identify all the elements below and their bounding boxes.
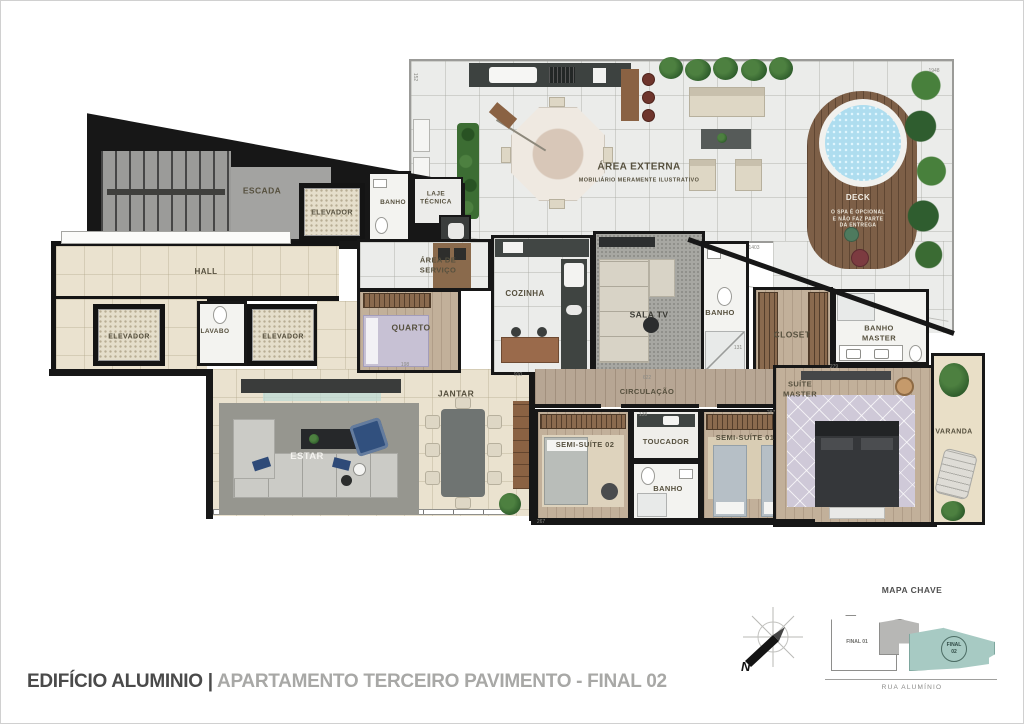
room-label-circulacao: CIRCULAÇÃO (620, 387, 674, 397)
room-label-area-servico: ÁREA DESERVIÇO (420, 255, 456, 275)
room-label-hall: HALL (195, 267, 218, 277)
toilet-icon (641, 467, 655, 485)
hall-bench (61, 231, 291, 244)
dining-chair (487, 415, 502, 429)
circulation-wall (535, 404, 601, 408)
floor-plant (499, 493, 521, 515)
dining-chair (455, 497, 471, 509)
dimension-label: 287 (767, 410, 775, 416)
key-map-final02-badge: FINAL 02 (941, 636, 967, 662)
room-label-area-externa-note: MOBILIÁRIO MERAMENTE ILUSTRATIVO (579, 177, 700, 184)
bed-bench (829, 507, 885, 519)
dining-chair (487, 443, 502, 457)
kitchen-stool (537, 327, 547, 337)
street-label: RUA ALUMÍNIO (882, 684, 943, 691)
grill-icon (549, 67, 575, 83)
north-label: N (741, 659, 750, 674)
key-map-final01-label: FINAL 01 (845, 639, 869, 646)
lounge-chair (413, 119, 430, 152)
sink-icon (373, 179, 387, 188)
basket (895, 377, 914, 396)
room-label-toucador: TOUCADOR (643, 437, 689, 447)
title-unit: APARTAMENTO TERCEIRO PAVIMENTO - FINAL 0… (217, 671, 667, 692)
toilet-icon (213, 306, 227, 324)
kitchen-stool (511, 327, 521, 337)
room-label-estar: ESTAR (290, 451, 324, 463)
key-map-final02-label: FINAL 02 (944, 642, 964, 656)
dining-chair (487, 471, 502, 485)
tv-console (599, 237, 655, 247)
varanda-plant (939, 363, 969, 397)
room-label-elevador-2: ELEVADOR (108, 332, 150, 341)
deck-side-table (844, 227, 859, 242)
dimension-label: 267 (537, 519, 545, 525)
room-label-banho-3: BANHO (653, 484, 683, 494)
kitchen-counter-top (495, 239, 589, 257)
table-plant (717, 133, 727, 143)
kitchen-counter-east (561, 259, 587, 369)
terrace-chair (501, 147, 511, 163)
west-wall (206, 369, 213, 519)
room-label-quarto: QUARTO (391, 322, 430, 333)
shower-box (705, 331, 745, 371)
planter-plants (659, 57, 683, 79)
compass: N (733, 597, 817, 689)
bar-counter (621, 69, 639, 121)
room-label-escada: ESCADA (243, 185, 281, 196)
toilet-icon (717, 287, 732, 306)
dining-chair (425, 443, 440, 457)
terrace-chair (549, 199, 565, 209)
room-label-banho-2: BANHO (705, 308, 735, 318)
south-wall (773, 522, 937, 527)
toilet-icon (909, 345, 922, 362)
key-map: MAPA CHAVE FINAL 01 FINAL 02 RUA ALUMÍNI… (823, 583, 1001, 703)
room-label-varanda: VARANDA (935, 427, 972, 436)
entry-corridor (317, 301, 359, 373)
planter-plants (685, 59, 711, 81)
dimension-label: 910 (514, 372, 522, 378)
key-map-title: MAPA CHAVE (882, 585, 943, 595)
buffet-cabinet (513, 401, 529, 489)
tv-sofa-chaise (649, 259, 675, 297)
bar-stool (642, 73, 655, 86)
varanda-plant (941, 501, 965, 521)
room-label-sala-tv: SALA TV (630, 309, 669, 320)
shower-box (637, 493, 667, 517)
single-bed (713, 445, 747, 517)
outdoor-armchair (735, 159, 762, 191)
master-bed (815, 421, 899, 507)
room-label-semi-suite-01: SEMI-SUÍTE 01 (716, 433, 775, 443)
deck-side-table (851, 249, 869, 267)
lobby-south-wall (49, 369, 209, 376)
side-table (353, 463, 366, 476)
double-sink-counter (839, 345, 903, 361)
stair-rail (107, 189, 225, 195)
room-label-deck: DECK (846, 193, 870, 203)
wardrobe (540, 414, 626, 429)
compass-rose-icon (733, 597, 817, 689)
dimension-label: 152 (412, 73, 418, 81)
side-table (341, 475, 352, 486)
tv-reflection (263, 393, 381, 401)
room-label-laje-tecnica: LAJETÉCNICA (420, 191, 452, 208)
terrace-chair (549, 97, 565, 107)
room-label-area-externa: ÁREA EXTERNA (597, 161, 680, 174)
spa-water (825, 105, 901, 181)
dimension-label: 1948 (928, 68, 939, 74)
dining-table (441, 409, 485, 497)
media-console (241, 379, 401, 393)
room-label-jantar: JANTAR (438, 388, 474, 399)
toilet-icon (375, 217, 388, 234)
planter-plants (741, 59, 767, 81)
outdoor-sink (489, 67, 537, 83)
room-label-closet: CLOSET (774, 329, 811, 340)
dining-chair (425, 415, 440, 429)
dining-chair (425, 471, 440, 485)
palm-plants (899, 65, 953, 269)
dimension-label: 279 (830, 364, 838, 370)
dimension-label: 138 (639, 412, 647, 418)
outdoor-appliance (593, 68, 606, 83)
street-line (825, 679, 997, 680)
room-label-elevador-3: ELEVADOR (262, 332, 304, 341)
title-separator: | (208, 671, 213, 692)
room-label-cozinha: COZINHA (505, 289, 544, 299)
dimension-label: 622 (643, 375, 651, 381)
title-building: EDIFÍCIO ALUMINIO (27, 671, 203, 692)
dimension-label: 131 (734, 345, 742, 351)
room-label-elevador-1: ELEVADOR (311, 208, 353, 217)
outdoor-armchair (689, 159, 716, 191)
bar-stool (642, 91, 655, 104)
sink-icon (679, 469, 693, 479)
dimension-label: 198 (401, 362, 409, 368)
floorplan-page: ESCADAELEVADORBANHOLAJETÉCNICAÁREA EXTER… (0, 0, 1024, 724)
desk-chair (601, 483, 618, 500)
room-label-suite-master: SUÍTEMASTER (783, 379, 817, 399)
circulation-wall (621, 404, 699, 408)
room-label-lavabo: LAVABO (201, 328, 230, 336)
room-label-banho-master: BANHOMASTER (862, 323, 896, 343)
closet-wardrobe (808, 292, 828, 372)
outdoor-sofa (689, 87, 765, 117)
planter-plants (769, 57, 793, 80)
kitchen-island (501, 337, 559, 363)
room-label-semi-suite-02: SEMI-SUÍTE 02 (556, 440, 615, 450)
plan-title: EDIFÍCIO ALUMINIO | APARTAMENTO TERCEIRO… (27, 671, 667, 693)
quarto-wardrobe (363, 293, 431, 308)
dimension-label: 1403 (748, 245, 759, 251)
planter-plants (713, 57, 738, 80)
room-label-deck-note: O SPA É OPCIONALE NÃO FAZ PARTEDA ENTREG… (831, 209, 885, 229)
room-label-banho-1: BANHO (380, 199, 406, 207)
bar-stool (642, 109, 655, 122)
